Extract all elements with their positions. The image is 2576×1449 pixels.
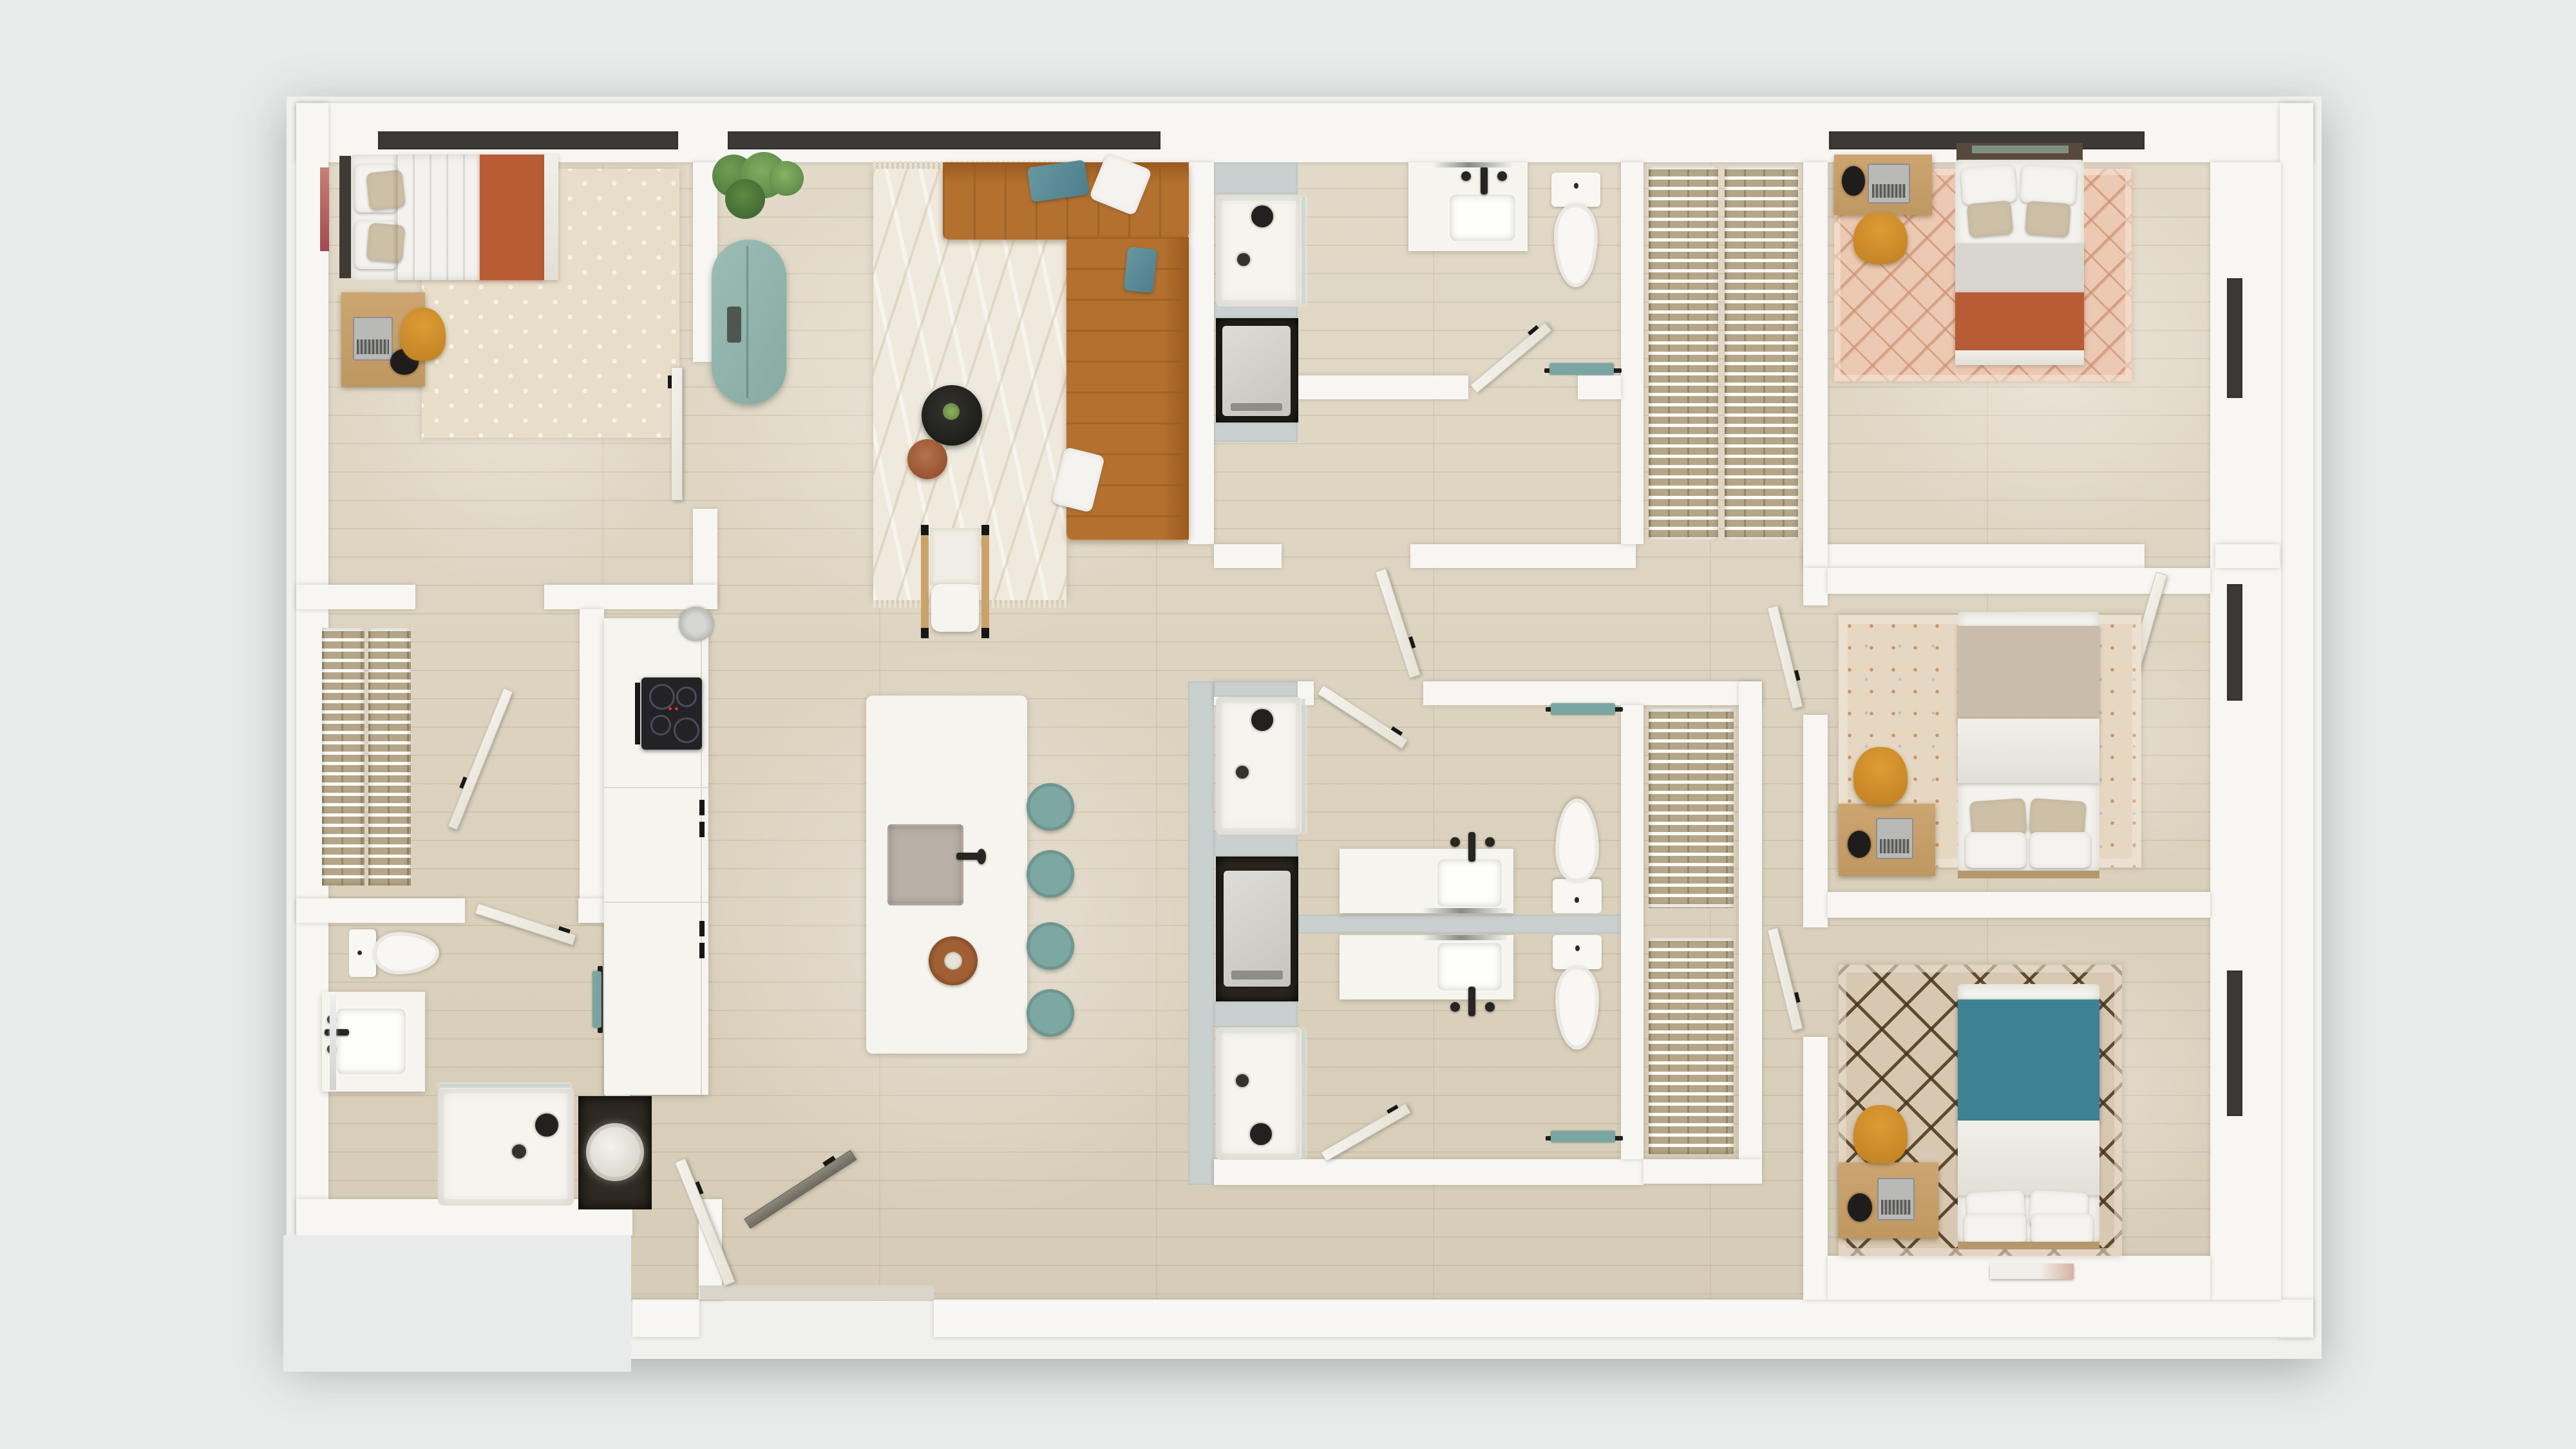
bed2-pillow-white-2 [2030, 832, 2090, 868]
window-bedroom2-side [2226, 583, 2244, 702]
wall-bathbl-top-a [296, 898, 465, 923]
vanity-tm-handle-2 [1497, 171, 1507, 181]
island-stool-2 [1027, 850, 1074, 898]
oven-handle [635, 683, 640, 744]
toilet-bathroom-b [1551, 935, 1604, 1050]
wall-bathbl-top-b [578, 898, 605, 923]
island-faucet-base [977, 849, 986, 864]
exterior-notch-bottom-left [283, 1235, 631, 1372]
accent-chair-rail-left [921, 527, 929, 638]
bed-tr [1955, 143, 2084, 365]
bed-tr-sheet [1955, 243, 2084, 296]
towel-bathroom-a [1551, 703, 1615, 715]
kitchen-island [866, 696, 1027, 1054]
kitchen-vent [679, 607, 714, 641]
closet-tr-col2 [1725, 166, 1798, 540]
vanity-tm-basin [1450, 194, 1515, 241]
bed1-duvet [396, 155, 481, 280]
vanity-b-lightbar [1423, 935, 1507, 940]
island-stool-1 [1027, 783, 1074, 831]
vanity-b-faucet [1468, 987, 1475, 1016]
bed-tr-sheet-foot [1955, 350, 2084, 365]
wall-bathb-bottom [1214, 1159, 1643, 1185]
wall-bed1-bottom-a [296, 585, 415, 609]
outer-wall-right [2280, 103, 2313, 1338]
cabinet-handle-1 [699, 800, 705, 815]
magazine-bedroom3 [1990, 1264, 2074, 1279]
cooktop [641, 677, 702, 750]
chair-bedroom2 [1853, 747, 1908, 805]
bed1-headboard [339, 156, 351, 278]
wall-bathab-divider [1298, 914, 1643, 934]
wall-midcol-cap3 [1214, 1001, 1298, 1027]
bed-tr-pillow-beige-1 [1967, 200, 2013, 238]
desk-lamp-bedroom-tr [1842, 166, 1865, 196]
cabinet-handle-2 [699, 822, 705, 837]
laptop-bedroom1 [353, 317, 393, 361]
coffee-table-plant [943, 403, 960, 420]
wall-hall-top-a [1214, 544, 1282, 568]
bed3-sheet [1958, 1121, 2099, 1195]
vanity-bathroom-a [1340, 849, 1513, 913]
chair-bedroom3 [1853, 1105, 1908, 1163]
credenza-seam [746, 246, 748, 398]
shower-bathroom-b [1216, 1027, 1302, 1160]
shower-bathroom-a [1216, 697, 1302, 835]
desk-bedroom3 [1839, 1162, 1938, 1238]
bed2-footboard [1958, 871, 2099, 878]
towel-bathroom-b [1551, 1131, 1615, 1142]
vanity-bathroom-b [1340, 935, 1513, 999]
vanity-bathroom-bl [322, 992, 425, 1092]
bed2-blanket-taupe [1958, 626, 2099, 721]
bed3-footboard [1958, 1242, 2099, 1249]
entry-threshold [699, 1285, 934, 1300]
floor-plan-canvas [0, 0, 2576, 1449]
wall-hall-top-b [1410, 544, 1636, 568]
washer-tm [1222, 326, 1291, 416]
bed-tr-blanket-terracotta [1955, 292, 2084, 352]
right-wall-band [2210, 162, 2281, 1300]
cabinet-handle-4 [699, 943, 705, 958]
outer-wall-bottom-b [934, 1300, 2313, 1337]
window-bedroom-tr-side [2226, 277, 2244, 399]
counter-split-2 [604, 902, 708, 903]
chair-bedroom-tr [1853, 213, 1908, 264]
wall-closettr-right [1803, 162, 1828, 568]
shower-bathroom-bl [438, 1087, 574, 1206]
wall-shower-column-cap3 [1214, 422, 1298, 442]
window-bedroom3-side [2226, 969, 2244, 1117]
vanity-a-basin [1437, 859, 1502, 907]
vanity-tm-handle-1 [1461, 171, 1471, 181]
bed-tr-pillow-beige-2 [2025, 201, 2070, 238]
vanity-b-basin [1437, 943, 1502, 990]
vanity-a-handle-1 [1450, 837, 1460, 847]
credenza-teal [712, 240, 786, 404]
toilet-bathroom-a [1551, 799, 1604, 913]
desk-lamp-bedroom2 [1848, 831, 1871, 858]
vanity-b-handle-2 [1485, 1002, 1495, 1012]
bed1-throw-terracotta [480, 155, 544, 280]
vanity-bl-basin [336, 1009, 406, 1074]
closet1-shelving-col1 [322, 628, 365, 885]
vanity-a-lightbar [1423, 908, 1507, 913]
bed3-blanket-teal [1958, 999, 2099, 1123]
wall-hall-top-c [1803, 544, 2145, 568]
vanity-a-handle-2 [1485, 837, 1495, 847]
island-stool-3 [1027, 922, 1074, 970]
sofa-backrest-right [1163, 237, 1189, 540]
bed-2 [1958, 612, 2099, 878]
wall-bathmid-right [1621, 705, 1643, 1159]
bed2-sheet [1958, 719, 2099, 783]
mirror-bathroom-bl [330, 995, 336, 1090]
laptop-bedroom-tr [1868, 164, 1910, 204]
closet-mid-upper [1649, 708, 1734, 908]
accent-chair-seat [931, 584, 979, 632]
bed3-pillow-4 [2031, 1213, 2093, 1244]
wall-midcol-cap2 [1214, 831, 1298, 857]
wall-closet-kitchen [580, 609, 604, 922]
door-bedroom1 [671, 367, 683, 500]
bed1-sheet-edge [544, 155, 558, 280]
toilet-bathroom-tm [1549, 173, 1602, 287]
towel-bathroom-bl [592, 971, 601, 1028]
laptop-bedroom2 [1876, 818, 1913, 859]
accent-chair-back [930, 528, 980, 585]
water-heater-tank [586, 1123, 644, 1181]
bed-tr-pillow-2 [2020, 165, 2078, 205]
wall-closetmid-east [1739, 681, 1762, 1160]
towel-bathroom-tm [1549, 363, 1614, 375]
vanity-a-faucet [1468, 832, 1475, 862]
chair-bedroom1 [401, 308, 446, 361]
side-table [907, 439, 947, 479]
wall-bedrooms-west-a [1803, 568, 1828, 605]
bed-tr-art [1972, 146, 2069, 153]
vanity-bathroom-tm [1408, 162, 1528, 251]
plant-fiddle-leaf [712, 152, 815, 228]
desk-bedroom2 [1839, 804, 1935, 876]
sofa-pillow-teal-2 [1124, 247, 1158, 293]
vanity-bl-faucet [325, 1029, 349, 1036]
counter-split-1 [604, 787, 708, 788]
wall-bedrooms-west-c [1803, 1037, 1828, 1300]
desk-bedroom-tr [1834, 155, 1932, 215]
bed-3 [1958, 984, 2099, 1249]
wall-hall-top-d [2215, 544, 2280, 568]
vanity-tm-lightbar [1434, 162, 1511, 167]
wall-shower-column-cap1 [1214, 162, 1298, 194]
accent-chair-rail-right [981, 527, 989, 638]
wall-living-bathblock [1188, 162, 1214, 544]
bed1 [339, 155, 558, 280]
wall-hall-bottom-b [1423, 681, 1762, 705]
closet1-shelving-col2 [368, 628, 411, 885]
toilet-bathroom-bl [349, 927, 439, 979]
closet-tr-col1 [1649, 166, 1718, 540]
laptop-bedroom3 [1877, 1178, 1915, 1220]
cabinet-handle-3 [699, 921, 705, 936]
wall-bedrooms-west-b [1803, 715, 1828, 927]
shower-bathroom-tm [1216, 194, 1302, 307]
wall-bathtm-bottom-a [1298, 375, 1468, 399]
accent-chair [921, 525, 989, 641]
window-living [726, 130, 1162, 151]
washer-mid [1224, 871, 1291, 987]
wall-bed1-bottom-b [544, 585, 717, 609]
desk-lamp-bedroom3 [1848, 1193, 1872, 1222]
wall-art-bedroom1 [320, 167, 329, 251]
wall-midcol-cap1 [1214, 681, 1298, 697]
island-stool-4 [1027, 989, 1074, 1037]
island-board-dish [944, 952, 962, 970]
outer-wall-bottom-a [632, 1300, 699, 1337]
island-sink [887, 824, 963, 905]
bed-tr-pillow-1 [1960, 164, 2017, 205]
wall-closetmid-bottom [1643, 1159, 1762, 1184]
wall-bathtm-right [1621, 162, 1643, 544]
wall-bed2-bed3 [1828, 892, 2210, 918]
wall-dining-bathblock [1188, 681, 1214, 1185]
vanity-tm-faucet [1481, 166, 1488, 194]
vanity-b-handle-1 [1450, 1002, 1460, 1012]
window-bedroom1 [377, 130, 679, 151]
credenza-handle [727, 307, 741, 343]
bed3-pillow-3 [1964, 1213, 2026, 1244]
wall-bathtm-bottom-b [1578, 375, 1621, 399]
bed2-pillow-white-1 [1965, 832, 2026, 868]
closet-mid-lower [1649, 938, 1734, 1154]
